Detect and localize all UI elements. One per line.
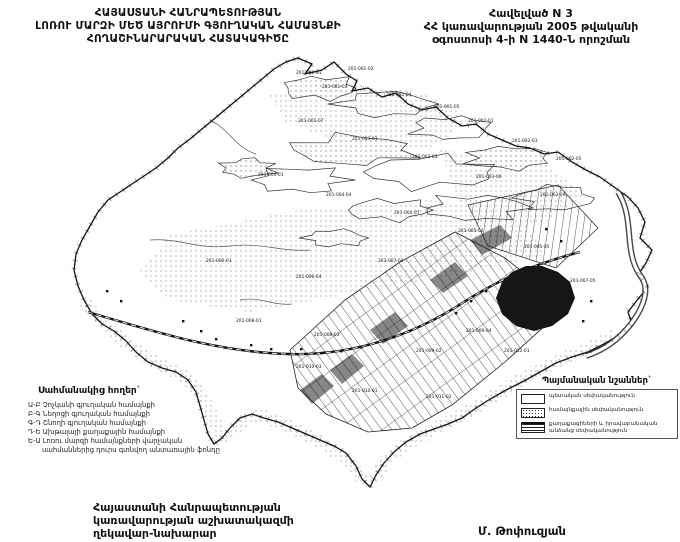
building-mark bbox=[200, 330, 202, 332]
parcel-code-label: 201-004-01 bbox=[258, 172, 284, 178]
community-ownership-swatch-icon bbox=[521, 408, 545, 418]
footer-line: կառավարության աշխատակազմի bbox=[93, 514, 294, 527]
parcel-code-label: 201-001-03 bbox=[322, 84, 348, 90]
border-legend-item: Ա-Բ Չոչկանի գյուղական համայնքի bbox=[28, 401, 228, 410]
signs-legend-label: պետական սեփականություն bbox=[549, 393, 635, 400]
parcel-code-label: 201-007-05 bbox=[570, 278, 596, 284]
building-mark bbox=[485, 290, 487, 292]
building-mark bbox=[590, 300, 592, 302]
signs-legend-item: քաղաքացիների և իրավաբանական անձանց սեփակ… bbox=[521, 421, 673, 435]
parcel-code-label: 201-010-03 bbox=[296, 364, 322, 370]
scanned-map-document: 201-001-01201-001-02201-001-03201-001-04… bbox=[0, 0, 680, 542]
parcel-code-label: 201-004-04 bbox=[326, 192, 352, 198]
border-legend-item: Գ-Դ Շնողի գյուղական համայնքի bbox=[28, 419, 228, 428]
border-legend-item: Դ-Ե Ախթալայի քաղաքային համայնքի bbox=[28, 428, 228, 437]
parcel-code-label: 201-009-04 bbox=[466, 328, 492, 334]
parcel-code-label: 201-007-02 bbox=[378, 258, 404, 264]
building-mark bbox=[582, 320, 584, 322]
parcel-code-label: 201-008-01 bbox=[236, 318, 262, 324]
appendix-line: ՀՀ կառավարության 2005 թվականի bbox=[388, 20, 674, 33]
signs-legend-item: պետական սեփականություն bbox=[521, 393, 673, 404]
signs-legend-label: համայնքային սեփականություն bbox=[549, 407, 643, 414]
parcel-code-label: 201-004-07 bbox=[394, 210, 420, 216]
parcel-code-label: 201-009-02 bbox=[416, 348, 442, 354]
parcel-code-label: 201-002-03 bbox=[512, 138, 538, 144]
building-mark bbox=[470, 300, 472, 302]
signs-legend-label: քաղաքացիների և իրավաբանական անձանց սեփակ… bbox=[549, 421, 673, 435]
signatory-name: Մ. Թոփուզյան bbox=[478, 524, 566, 538]
title-line: ԼՈՌՈՒ ՄԱՐԶԻ ՄԵԾ ԱՅՐՈՒՄԻ ԳՅՈՒՂԱԿԱՆ ՀԱՄԱՅՆ… bbox=[8, 20, 368, 33]
building-mark bbox=[320, 352, 322, 354]
footer-line: Հայաստանի Հանրապետության bbox=[93, 501, 294, 514]
private-ownership-swatch-icon bbox=[521, 422, 545, 433]
signs-legend-item: համայնքային սեփականություն bbox=[521, 407, 673, 418]
parcel-code-label: 201-003-03 bbox=[412, 154, 438, 160]
appendix-line: Հավելված N 3 bbox=[388, 7, 674, 20]
parcel-code-label: 201-006-01 bbox=[206, 258, 232, 264]
building-mark bbox=[545, 228, 547, 230]
border-legend-item: Ե-Ա Լոռու մարզի համայնքների վարչական bbox=[28, 437, 228, 446]
border-legend-item: Բ-Գ Նեղոցի գյուղական համայնքի bbox=[28, 410, 228, 419]
footer-line: ղեկավար-նախարար bbox=[93, 527, 294, 540]
parcel-code-label: 201-001-05 bbox=[434, 104, 460, 110]
bordering-lands-heading: Սահմանակից հողեր` bbox=[38, 386, 228, 396]
parcel-code-label: 201-001-04 bbox=[386, 92, 412, 98]
conventional-signs-heading: Պայմանական նշաններ` bbox=[516, 376, 678, 386]
signs-legend-items: պետական սեփականությունհամայնքային սեփակա… bbox=[516, 389, 678, 439]
appendix-reference: Հավելված N 3 ՀՀ կառավարության 2005 թվակա… bbox=[388, 7, 674, 46]
parcel-code-label: 201-012-01 bbox=[504, 348, 530, 354]
building-mark bbox=[455, 312, 457, 314]
building-mark bbox=[250, 344, 252, 346]
building-mark bbox=[560, 240, 562, 242]
bordering-lands-legend: Սահմանակից հողեր` Ա-Բ Չոչկանի գյուղական … bbox=[28, 386, 228, 455]
title-line: ՀԱՅԱՍՏԱՆԻ ՀԱՆՐԱՊԵՏՈՒԹՅԱՆ bbox=[8, 7, 368, 20]
appendix-line: օգոստոսի 4-ի N 1440-Ն որոշման bbox=[388, 33, 674, 46]
building-mark bbox=[106, 290, 108, 292]
parcel-code-label: 201-002-05 bbox=[556, 156, 582, 162]
parcel-code-label: 201-005-05 bbox=[524, 244, 550, 250]
parcel-code-label: 201-010-01 bbox=[352, 388, 378, 394]
parcel-code-label: 201-005-02 bbox=[458, 228, 484, 234]
parcel-code-label: 201-006-04 bbox=[296, 274, 322, 280]
building-mark bbox=[360, 346, 362, 348]
title-line: ՀՈՂԱՇԻՆԱՐԱՐԱԿԱՆ ՀԱՏԱԿԱԳԻԾԸ bbox=[8, 33, 368, 46]
parcel-code-label: 201-003-06 bbox=[476, 174, 502, 180]
parcel-code-label: 201-001-02 bbox=[348, 66, 374, 72]
parcel-code-label: 201-003-09 bbox=[540, 192, 566, 198]
parcel-code-label: 201-001-07 bbox=[298, 118, 324, 124]
building-mark bbox=[340, 350, 342, 352]
parcel-code-label: 201-008-03 bbox=[314, 332, 340, 338]
building-mark bbox=[120, 300, 122, 302]
parcel-code-label: 201-003-01 bbox=[352, 136, 378, 142]
building-mark bbox=[300, 348, 302, 350]
border-legend-items: Ա-Բ Չոչկանի գյուղական համայնքիԲ-Գ Նեղոցի… bbox=[28, 401, 228, 455]
signatory-title: Հայաստանի Հանրապետության կառավարության ա… bbox=[93, 501, 294, 540]
conventional-signs-legend: Պայմանական նշաններ` պետական սեփականությո… bbox=[516, 376, 678, 439]
parcel-code-label: 201-001-01 bbox=[296, 70, 322, 76]
parcel-code-label: 201-011-02 bbox=[426, 394, 452, 400]
building-mark bbox=[270, 348, 272, 350]
building-mark bbox=[182, 320, 184, 322]
border-legend-item: սահմաններից դուրս գտնվող անտառային ֆոնդը bbox=[42, 446, 228, 455]
building-mark bbox=[215, 338, 217, 340]
state-ownership-swatch-icon bbox=[521, 394, 545, 404]
parcel-code-label: 201-002-01 bbox=[468, 118, 494, 124]
cadastral-map: 201-001-01201-001-02201-001-03201-001-04… bbox=[0, 0, 680, 542]
document-title: ՀԱՅԱՍՏԱՆԻ ՀԱՆՐԱՊԵՏՈՒԹՅԱՆ ԼՈՌՈՒ ՄԱՐԶԻ ՄԵԾ… bbox=[8, 7, 368, 46]
